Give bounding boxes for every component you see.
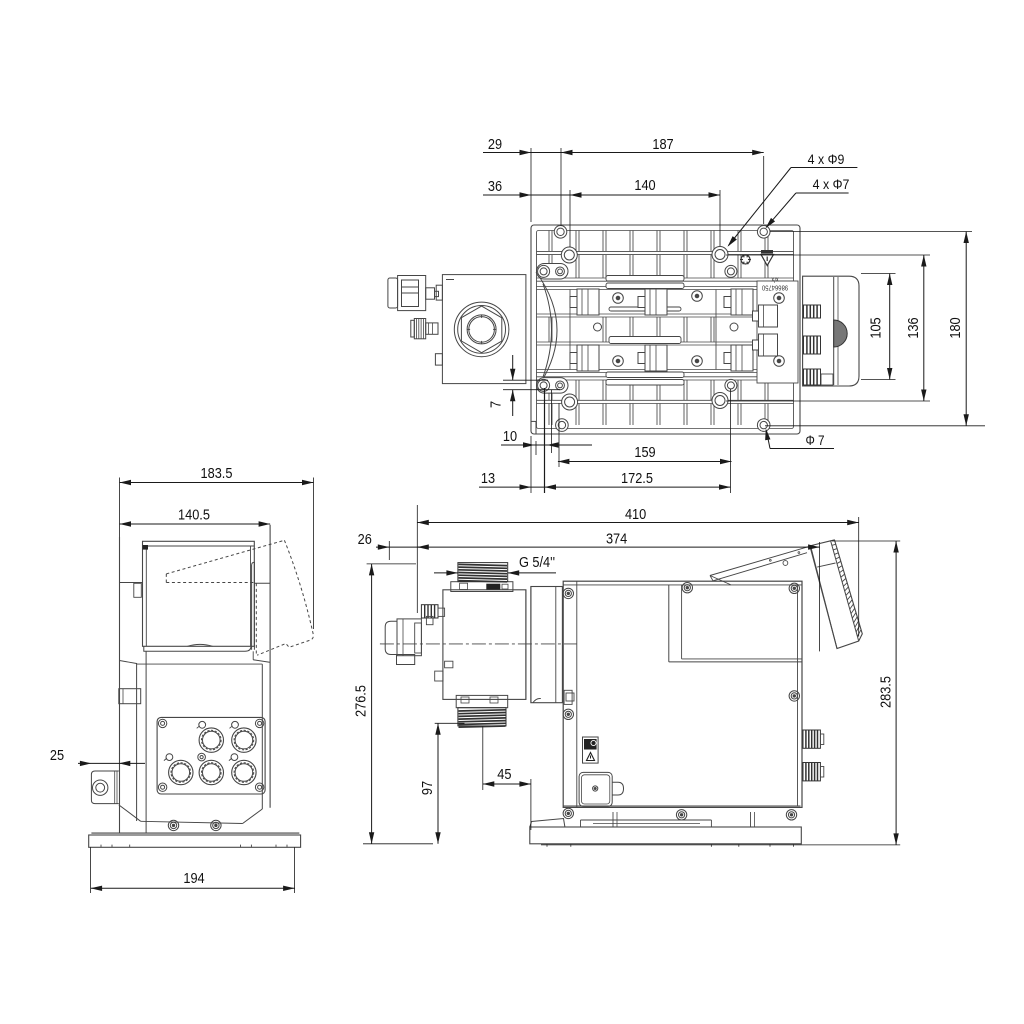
- svg-text:283.5: 283.5: [878, 676, 895, 708]
- svg-text:97: 97: [419, 781, 436, 795]
- svg-text:410: 410: [625, 506, 646, 523]
- svg-text:7: 7: [488, 401, 505, 408]
- svg-text:140.5: 140.5: [178, 507, 210, 524]
- svg-text:G 5/4'': G 5/4'': [519, 554, 555, 571]
- svg-text:374: 374: [606, 531, 627, 548]
- svg-text:136: 136: [905, 317, 922, 338]
- svg-text:25: 25: [50, 747, 64, 764]
- svg-text:29: 29: [488, 136, 502, 153]
- svg-text:Φ 7: Φ 7: [805, 433, 824, 449]
- svg-text:26: 26: [358, 531, 372, 548]
- svg-text:x/x: x/x: [771, 276, 779, 283]
- svg-text:4 x Φ7: 4 x Φ7: [813, 177, 850, 193]
- svg-text:276.5: 276.5: [353, 685, 370, 717]
- svg-text:187: 187: [652, 136, 673, 153]
- svg-text:98664750: 98664750: [762, 284, 788, 291]
- svg-text:13: 13: [481, 470, 495, 487]
- svg-text:10: 10: [503, 428, 517, 445]
- svg-text:172.5: 172.5: [621, 470, 653, 487]
- svg-text:105: 105: [868, 317, 885, 338]
- svg-text:140: 140: [634, 177, 655, 194]
- svg-text:45: 45: [497, 766, 511, 783]
- svg-text:4 x Φ9: 4 x Φ9: [808, 152, 845, 168]
- svg-text:183.5: 183.5: [201, 465, 233, 482]
- svg-text:194: 194: [183, 870, 204, 887]
- svg-text:180: 180: [947, 317, 964, 338]
- svg-text:159: 159: [634, 444, 655, 461]
- svg-text:36: 36: [488, 178, 502, 195]
